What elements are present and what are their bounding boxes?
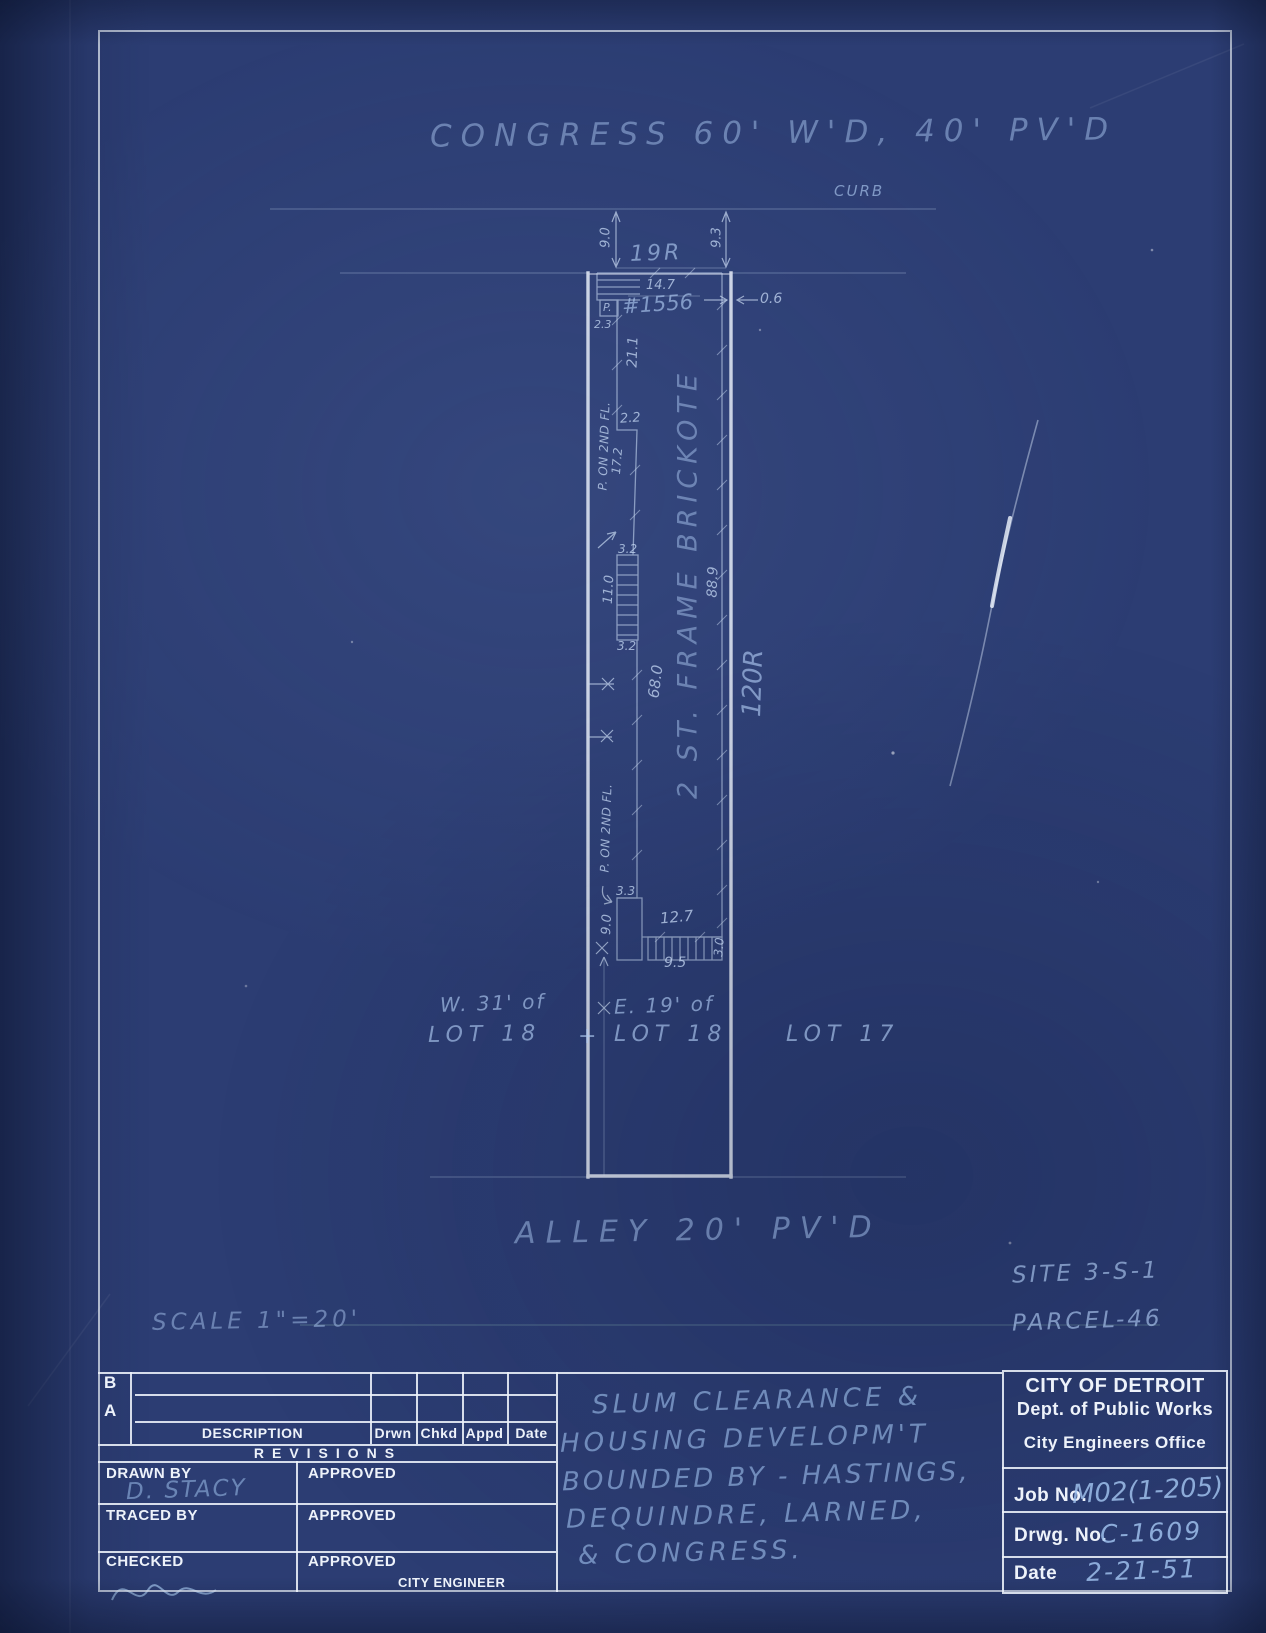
agency-dept: Dept. of Public Works [1002, 1400, 1228, 1418]
lot17-label: LOT 17 [786, 1024, 899, 1046]
drwg-no-label: Drwg. No. [1014, 1526, 1107, 1545]
curb-label: CURB [834, 184, 884, 199]
dim-rear-porch-depth: 9.0 [599, 904, 614, 945]
col-chkd: Chkd [416, 1426, 462, 1440]
lot-west-part: W. 31' of [440, 991, 546, 1015]
titleblock-line [556, 1372, 558, 1592]
titleblock-line [135, 1394, 556, 1396]
street-label: CONGRESS 60' W'D, 40' PV'D [430, 114, 1117, 152]
col-date: Date [507, 1426, 556, 1440]
col-drwn: Drwn [370, 1426, 416, 1440]
drwg-no-value: C-1609 [1100, 1518, 1203, 1547]
blueprint-page: CONGRESS 60' W'D, 40' PV'D CURB 9.0 9.3 … [0, 0, 1266, 1633]
note-line-5: & CONGRESS. [578, 1537, 804, 1569]
parcel-label: PARCEL-46 [1012, 1307, 1163, 1335]
alley-label: ALLEY 20' PV'D [515, 1213, 882, 1249]
porch-mark: P. [603, 302, 612, 313]
house-number: #1556 [621, 292, 693, 318]
dim-front-setback-left: 9.0 [600, 218, 613, 258]
job-no-value: M02(1-205) [1071, 1474, 1224, 1508]
titleblock-line [1002, 1467, 1228, 1469]
col-description: DESCRIPTION [135, 1426, 370, 1440]
dim-wall-a: 21.1 [625, 330, 641, 374]
traced-by-label: TRACED BY [106, 1508, 198, 1523]
approved-label-2: APPROVED [308, 1508, 396, 1523]
date-label: Date [1014, 1564, 1057, 1583]
titleblock-line [130, 1372, 132, 1444]
lot-east-part: E. 19' of [614, 993, 715, 1016]
site-label: SITE 3-S-1 [1012, 1259, 1160, 1287]
titleblock-line [296, 1461, 298, 1592]
checked-label: CHECKED [106, 1554, 184, 1569]
agency-office: City Engineers Office [1002, 1434, 1228, 1451]
dim-rear-porch-width: 3.3 [616, 885, 635, 897]
dim-jog: 2.2 [620, 411, 642, 425]
titleblock-line [98, 1461, 556, 1463]
agency-name: CITY OF DETROIT [1002, 1376, 1228, 1396]
dim-rear-width: 12.7 [659, 909, 694, 927]
approved-label-1: APPROVED [308, 1466, 396, 1481]
dim-steps: 11.0 [601, 567, 616, 612]
date-value: 2-21-51 [1086, 1556, 1198, 1585]
lot-tick: + [578, 1026, 596, 1048]
dim-building-depth: 88.9 [705, 560, 721, 604]
building-label: 2 ST. FRAME BRICKOTE [675, 354, 702, 814]
dim-frontage: 19R [630, 242, 683, 266]
dim-lot-depth: 120R [739, 657, 767, 718]
dim-step-bottom: 3.2 [617, 640, 636, 652]
titleblock-line [98, 1372, 1002, 1374]
dim-front-setback-right: 9.3 [711, 218, 724, 258]
dim-porch-offset: 2.3 [594, 319, 612, 330]
lot18-west-label: LOT 18 [428, 1023, 542, 1047]
revisions-title: REVISIONS [100, 1446, 556, 1460]
titleblock-line [1002, 1511, 1228, 1513]
dim-side-gap: 0.6 [760, 292, 782, 306]
lot18-east-label: LOT 18 [614, 1024, 727, 1046]
drawn-by-value: D. STACY [126, 1477, 247, 1504]
titleblock-line [135, 1421, 556, 1423]
revision-row-b: B [104, 1374, 117, 1391]
approved-label-3: APPROVED [308, 1554, 396, 1569]
dim-step-top: 3.2 [618, 543, 637, 555]
city-engineer-label: CITY ENGINEER [398, 1576, 505, 1589]
scale-label: SCALE 1"=20' [152, 1308, 361, 1335]
dim-rear-steps-width: 9.5 [664, 956, 686, 970]
revision-row-a: A [104, 1402, 117, 1419]
col-appd: Appd [462, 1426, 507, 1440]
